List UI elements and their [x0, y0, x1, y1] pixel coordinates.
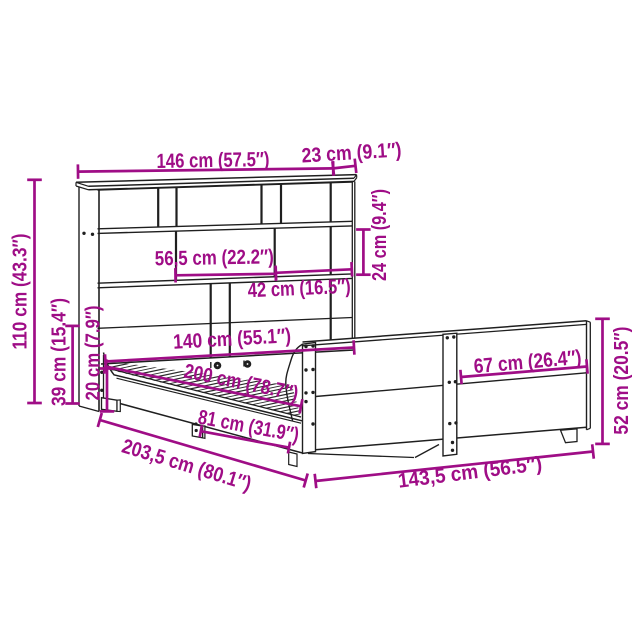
svg-text:39 cm (15.4″): 39 cm (15.4″) [48, 298, 71, 406]
svg-text:24 cm (9.4″): 24 cm (9.4″) [368, 189, 391, 281]
svg-text:110 cm (43.3″): 110 cm (43.3″) [9, 234, 32, 350]
svg-text:146 cm (57.5″): 146 cm (57.5″) [156, 148, 269, 173]
svg-text:42 cm (16.5″): 42 cm (16.5″) [247, 275, 351, 302]
svg-text:52 cm (20.5″): 52 cm (20.5″) [610, 327, 633, 435]
svg-text:56,5 cm (22.2″): 56,5 cm (22.2″) [155, 245, 274, 270]
svg-text:20 cm (7.9″): 20 cm (7.9″) [82, 306, 105, 401]
